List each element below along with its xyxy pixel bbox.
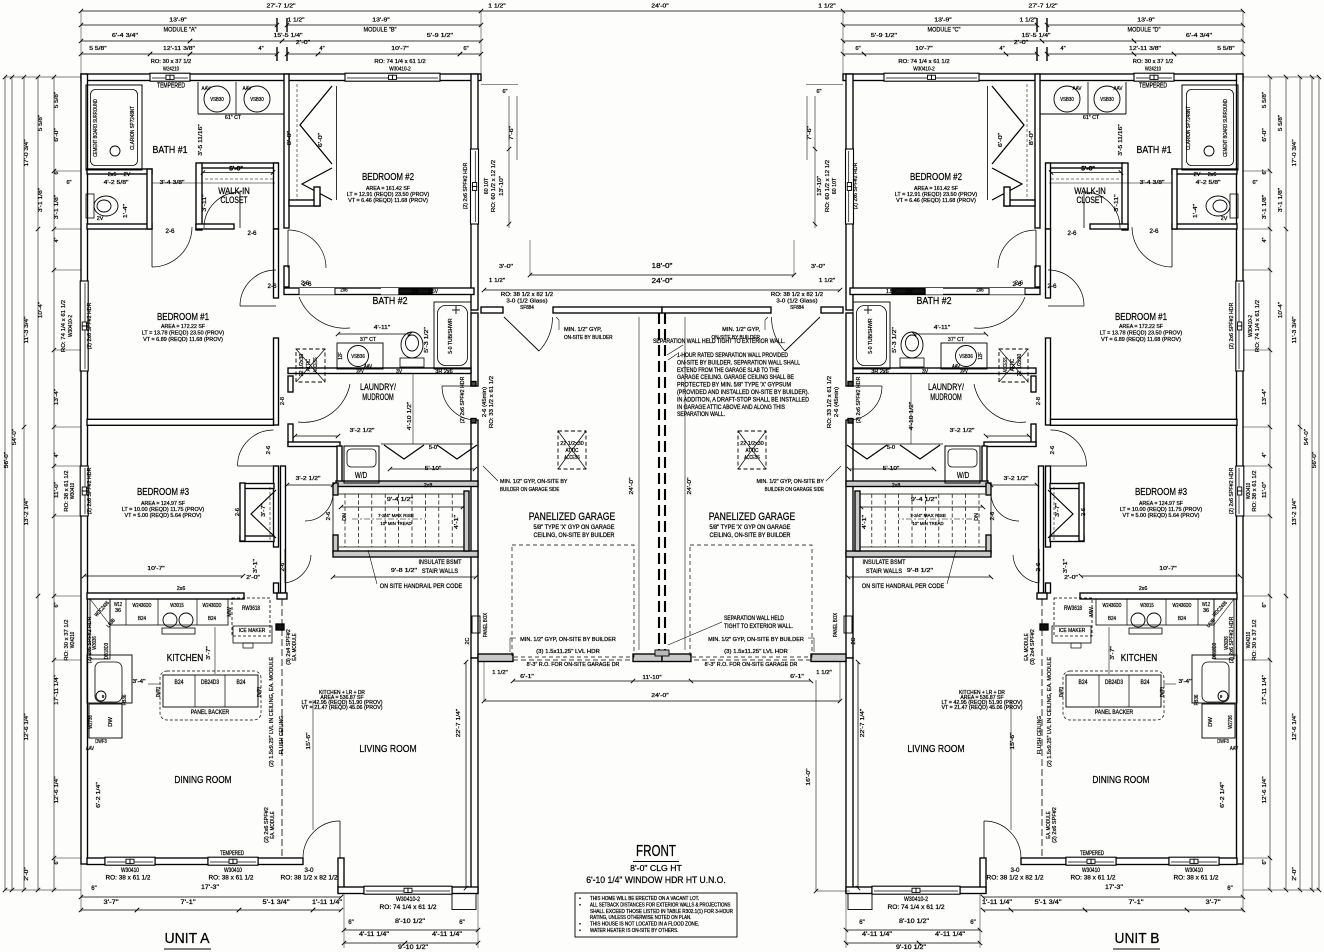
svg-text:2-8: 2-8 — [1036, 397, 1042, 405]
svg-text:1.5V: 1.5V — [428, 289, 439, 295]
svg-text:4'-11 1/4": 4'-11 1/4" — [359, 932, 389, 938]
svg-text:9: 9 — [102, 694, 105, 699]
svg-text:CEILING, ON-SITE BY BUILDER: CEILING, ON-SITE BY BUILDER — [534, 533, 616, 539]
svg-text:5-0: 5-0 — [429, 445, 437, 451]
svg-text:VT = 6.89 (REQD) 11.68 (PROV): VT = 6.89 (REQD) 11.68 (PROV) — [1101, 337, 1181, 343]
svg-text:6'-10 1/4" WINDOW HDR HT U.N.O: 6'-10 1/4" WINDOW HDR HT U.N.O. — [586, 875, 726, 885]
svg-text:13'-4": 13'-4" — [54, 389, 60, 405]
svg-text:SF884: SF884 — [790, 305, 804, 311]
svg-text:3'-2 1/2": 3'-2 1/2" — [296, 476, 321, 482]
svg-text:BATH #2: BATH #2 — [373, 296, 408, 307]
svg-text:RO: 74 1/4 x 61 1/2: RO: 74 1/4 x 61 1/2 — [374, 59, 425, 65]
svg-text:VT = 6.46 (REQD) 11.68 (PROV): VT = 6.46 (REQD) 11.68 (PROV) — [896, 198, 976, 204]
svg-text:24'-0": 24'-0" — [651, 693, 668, 699]
svg-text:DW: DW — [108, 717, 114, 727]
svg-text:(2) 1.5x9.25" LVL IN CEILING,: (2) 1.5x9.25" LVL IN CEILING, EA. MODULE — [269, 657, 275, 767]
svg-text:TIGHT TO EXTERIOR WALL.: TIGHT TO EXTERIOR WALL. — [724, 624, 793, 630]
svg-text:MUDROOM: MUDROOM — [362, 392, 394, 402]
svg-text:5 5/8": 5 5/8" — [89, 46, 106, 52]
svg-text:3-0 (1/2 Glass): 3-0 (1/2 Glass) — [776, 299, 817, 305]
svg-text:2-6 (45min): 2-6 (45min) — [482, 387, 488, 417]
svg-text:VT = 21.47 (REQD) 45.06 (PROV): VT = 21.47 (REQD) 45.06 (PROV) — [302, 705, 383, 711]
svg-text:4": 4" — [999, 46, 1004, 52]
svg-text:AAV: AAV — [952, 364, 960, 370]
svg-text:12'-11 3/8": 12'-11 3/8" — [1129, 46, 1161, 52]
svg-text:2V: 2V — [124, 172, 131, 178]
svg-text:W2736: W2736 — [1228, 715, 1234, 729]
svg-text:10'-7": 10'-7" — [391, 46, 408, 52]
svg-text:TEMPERED: TEMPERED — [220, 851, 244, 857]
svg-text:6'-0": 6'-0" — [318, 133, 324, 147]
svg-text:1.5V: 1.5V — [886, 289, 897, 295]
svg-text:RO: 74 1/4 x 61 1/2: RO: 74 1/4 x 61 1/2 — [61, 300, 67, 352]
svg-text:1 1/2": 1 1/2" — [1020, 18, 1037, 24]
svg-text:RO: 38 1/2 x 82 1/2: RO: 38 1/2 x 82 1/2 — [987, 876, 1045, 882]
svg-text:ON-SITE BY BUILDER: ON-SITE BY BUILDER — [564, 335, 613, 341]
svg-text:W24210: W24210 — [70, 632, 76, 649]
svg-text:4'-2 5/8": 4'-2 5/8" — [104, 180, 129, 186]
svg-text:24'-0": 24'-0" — [687, 477, 693, 494]
svg-text:5 5/8": 5 5/8" — [1217, 46, 1234, 52]
svg-text:13'-2 1/4": 13'-2 1/4" — [24, 498, 30, 525]
svg-text:CLARION SP7248NT: CLARION SP7248NT — [130, 105, 136, 150]
svg-text:KITCHEN: KITCHEN — [167, 653, 203, 664]
svg-text:RO: 60 1/2 x 12 1/2: RO: 60 1/2 x 12 1/2 — [825, 160, 831, 212]
svg-text:3'-7": 3'-7" — [1110, 646, 1116, 660]
svg-text:11'-0": 11'-0" — [1262, 482, 1268, 498]
svg-text:RO: 38 x 61 1/2: RO: 38 x 61 1/2 — [106, 876, 152, 882]
svg-text:12'-11 3/8": 12'-11 3/8" — [163, 46, 195, 52]
svg-text:PANEL BOX: PANEL BOX — [483, 613, 489, 638]
svg-text:1 1/2": 1 1/2" — [488, 4, 505, 10]
svg-text:AREA = 172.22 SF: AREA = 172.22 SF — [161, 324, 206, 330]
svg-text:7-3/4" MAX RISE: 7-3/4" MAX RISE — [910, 513, 946, 519]
svg-text:4'-11": 4'-11" — [934, 325, 951, 331]
svg-text:W2436DD: W2436DD — [1103, 603, 1122, 609]
svg-text:B24: B24 — [138, 616, 146, 622]
svg-text:4": 4" — [54, 452, 60, 457]
svg-text:EA. MODULE: EA. MODULE — [1046, 811, 1052, 839]
svg-text:15'-6": 15'-6" — [306, 732, 312, 749]
svg-text:27'-7 1/2": 27'-7 1/2" — [267, 4, 296, 10]
svg-text:9'-4 1/2": 9'-4 1/2" — [387, 497, 413, 503]
svg-text:4'-11": 4'-11" — [374, 325, 391, 331]
svg-text:MIN. 1/2" GYP,: MIN. 1/2" GYP, — [564, 327, 602, 333]
svg-text:MODULE "C": MODULE "C" — [928, 27, 962, 34]
svg-text:3'-7": 3'-7" — [1206, 900, 1221, 906]
svg-text:6": 6" — [1262, 859, 1268, 864]
svg-text:W2436DD: W2436DD — [1173, 603, 1192, 609]
svg-text:4'-10 1/2": 4'-10 1/2" — [407, 402, 413, 431]
svg-text:12F: 12F — [338, 352, 344, 360]
svg-text:5/8" TYPE 'X' GYP ON GARAGE: 5/8" TYPE 'X' GYP ON GARAGE — [710, 525, 791, 531]
svg-text:6'-1": 6'-1" — [790, 674, 804, 680]
svg-text:11'-3 3/4": 11'-3 3/4" — [24, 316, 30, 343]
svg-text:2x8: 2x8 — [424, 483, 433, 489]
svg-text:17'-11 1/4": 17'-11 1/4" — [54, 675, 60, 705]
svg-text:13'-2 1/4": 13'-2 1/4" — [1292, 498, 1298, 525]
svg-text:BATH #1: BATH #1 — [1137, 145, 1172, 156]
svg-text:5'-1 3/4": 5'-1 3/4" — [1035, 900, 1062, 906]
svg-text:6": 6" — [54, 169, 60, 174]
svg-text:12'-6 1/4": 12'-6 1/4" — [1292, 713, 1298, 740]
svg-text:3'-11": 3'-11" — [202, 194, 208, 211]
svg-text:3'-7": 3'-7" — [104, 900, 119, 906]
svg-text:2V: 2V — [97, 216, 104, 222]
svg-text:11'-3 3/4": 11'-3 3/4" — [1292, 316, 1298, 343]
svg-text:W30410-2: W30410-2 — [396, 897, 421, 903]
svg-text:RO: 38 x 61 1/2: RO: 38 x 61 1/2 — [1252, 470, 1258, 511]
svg-text:B24: B24 — [237, 680, 247, 686]
svg-text:1 1/2": 1 1/2" — [489, 278, 505, 284]
svg-text:24'-0": 24'-0" — [652, 278, 674, 285]
svg-text:6'-0": 6'-0" — [54, 128, 60, 142]
svg-text:2-6: 2-6 — [1081, 508, 1087, 516]
svg-text:6'-4 3/4": 6'-4 3/4" — [1186, 33, 1212, 39]
svg-text:RO: 74 1/4 x 61 1/2: RO: 74 1/4 x 61 1/2 — [888, 905, 946, 911]
svg-text:2-6: 2-6 — [280, 563, 286, 572]
svg-text:UNIT B: UNIT B — [1115, 930, 1160, 947]
svg-text:1'-11 1/4": 1'-11 1/4" — [312, 900, 342, 906]
svg-text:DINING ROOM: DINING ROOM — [1092, 775, 1149, 786]
svg-text:LAUNDRY/: LAUNDRY/ — [928, 382, 964, 392]
svg-text:RATING, UNLESS OTHERWISE NOTED: RATING, UNLESS OTHERWISE NOTED ON PLAN. — [590, 915, 691, 921]
svg-text:BUILDER ON GARAGE SIDE: BUILDER ON GARAGE SIDE — [765, 487, 825, 493]
svg-text:2-6: 2-6 — [990, 512, 996, 521]
svg-text:W30410: W30410 — [70, 483, 76, 500]
svg-text:2x6: 2x6 — [1139, 586, 1148, 592]
svg-text:ACCESS: ACCESS — [744, 455, 760, 461]
svg-text:EXTEND FROM THE GARAGE SLAB TO: EXTEND FROM THE GARAGE SLAB TO THE — [677, 368, 779, 374]
svg-text:6": 6" — [1262, 602, 1268, 607]
svg-text:4'-10 1/2": 4'-10 1/2" — [909, 402, 915, 431]
svg-text:2'-0": 2'-0" — [246, 575, 260, 581]
svg-text:5 5/8": 5 5/8" — [38, 115, 44, 131]
svg-text:(2) 2x6 SPF#2 HDR: (2) 2x6 SPF#2 HDR — [87, 617, 93, 664]
svg-text:PANEL BACKER: PANEL BACKER — [1095, 709, 1134, 716]
svg-text:13'-9": 13'-9" — [1137, 18, 1154, 24]
svg-text:5'-9 1/2": 5'-9 1/2" — [871, 33, 897, 39]
svg-text:3'-7": 3'-7" — [206, 646, 212, 660]
svg-text:4": 4" — [319, 46, 324, 52]
svg-text:4'-1": 4'-1" — [454, 515, 460, 529]
svg-text:1'-11 1/4": 1'-11 1/4" — [982, 900, 1012, 906]
svg-text:1'-4": 1'-4" — [123, 204, 129, 218]
svg-text:22 1/2x30: 22 1/2x30 — [1017, 354, 1023, 377]
svg-text:18'-0": 18'-0" — [652, 263, 674, 270]
svg-text:RO: 38 x 61 1/2: RO: 38 x 61 1/2 — [1071, 876, 1117, 882]
svg-text:TEMPERED: TEMPERED — [1080, 851, 1104, 857]
svg-text:6'-2 1/4": 6'-2 1/4" — [1220, 782, 1226, 808]
svg-text:SEPARATION WALL HELD: SEPARATION WALL HELD — [724, 616, 785, 622]
svg-text:5'-9 1/2": 5'-9 1/2" — [427, 33, 453, 39]
svg-text:22'-7 1/4": 22'-7 1/4" — [456, 709, 462, 738]
svg-text:DWF3: DWF3 — [95, 739, 107, 745]
svg-text:3'-1 1/8": 3'-1 1/8" — [38, 188, 44, 212]
svg-text:2x8: 2x8 — [892, 483, 901, 489]
svg-text:1-HOUR RATED SEPARATION WALL P: 1-HOUR RATED SEPARATION WALL PROVIDED — [677, 353, 789, 359]
svg-text:1 1/2": 1 1/2" — [819, 278, 835, 284]
svg-text:37" CT: 37" CT — [360, 337, 377, 343]
svg-text:2-6: 2-6 — [301, 281, 309, 287]
svg-text:15'-5 1/4": 15'-5 1/4" — [274, 33, 303, 39]
svg-text:B24: B24 — [175, 680, 185, 686]
svg-text:W30410: W30410 — [224, 868, 243, 874]
svg-text:4'-11 1/4": 4'-11 1/4" — [432, 932, 462, 938]
svg-text:FLUSH CEILING: FLUSH CEILING — [279, 715, 285, 754]
svg-text:DB24D3: DB24D3 — [1105, 680, 1124, 686]
svg-text:12'-6 1/4": 12'-6 1/4" — [1262, 776, 1268, 803]
svg-text:6": 6" — [54, 859, 60, 864]
svg-text:3'-7": 3'-7" — [261, 503, 267, 517]
svg-text:ON SITE HANDRAIL PER CODE: ON SITE HANDRAIL PER CODE — [380, 583, 463, 590]
svg-text:2-6: 2-6 — [326, 512, 332, 521]
svg-text:VSB30: VSB30 — [250, 97, 264, 103]
svg-text:W30410: W30410 — [121, 868, 140, 874]
svg-text:MIN. 1/2" GYP,: MIN. 1/2" GYP, — [722, 327, 760, 333]
svg-text:AAV: AAV — [1230, 746, 1238, 752]
svg-text:13'-10": 13'-10" — [817, 176, 823, 196]
svg-text:9'-8 1/2": 9'-8 1/2" — [907, 568, 933, 574]
svg-text:W24210: W24210 — [1145, 67, 1161, 73]
svg-text:1'-4": 1'-4" — [1193, 204, 1199, 218]
svg-text:10" MIN TREAD: 10" MIN TREAD — [380, 521, 412, 527]
svg-text:INSULATE BSMT: INSULATE BSMT — [863, 559, 906, 566]
svg-text:W/D: W/D — [355, 471, 367, 480]
svg-text:VT = 21.47 (REQD) 45.06 (PROV): VT = 21.47 (REQD) 45.06 (PROV) — [942, 705, 1023, 711]
svg-text:4'-11 1/4": 4'-11 1/4" — [862, 932, 892, 938]
svg-text:EA. MODULE: EA. MODULE — [270, 811, 276, 839]
svg-text:AAV: AAV — [1114, 86, 1123, 92]
svg-text:RO: 38 1/2 x 82 1/2: RO: 38 1/2 x 82 1/2 — [771, 292, 823, 298]
svg-text:RW3618: RW3618 — [1064, 606, 1083, 612]
svg-text:11'-0": 11'-0" — [54, 482, 60, 498]
svg-text:DWP3: DWP3 — [1059, 687, 1065, 697]
svg-text:CEILING, ON-SITE BY BUILDER: CEILING, ON-SITE BY BUILDER — [710, 533, 792, 539]
svg-text:17'-11 1/4": 17'-11 1/4" — [1262, 675, 1268, 705]
svg-text:2-6: 2-6 — [248, 231, 258, 237]
svg-text:MUDROOM: MUDROOM — [930, 392, 962, 402]
svg-text:12F: 12F — [978, 352, 984, 360]
svg-text:12'-6 1/4": 12'-6 1/4" — [54, 776, 60, 803]
svg-text:LIVING ROOM: LIVING ROOM — [907, 744, 964, 755]
svg-text:BEDROOM #2: BEDROOM #2 — [910, 172, 962, 183]
svg-text:2'-0": 2'-0" — [1014, 40, 1029, 46]
svg-text:10'-7": 10'-7" — [1159, 566, 1176, 572]
svg-text:BUILDER ON GARAGE SIDE: BUILDER ON GARAGE SIDE — [500, 487, 560, 493]
svg-text:5 5/8": 5 5/8" — [1262, 92, 1268, 108]
svg-text:7'-6": 7'-6" — [509, 126, 515, 140]
svg-text:FLUSH CEILING: FLUSH CEILING — [1037, 715, 1043, 754]
svg-text:TEMPERED: TEMPERED — [1139, 83, 1167, 90]
svg-text:MIN. 1/2" GYP, ON-SITE BY: MIN. 1/2" GYP, ON-SITE BY — [757, 479, 825, 485]
svg-text:24'-0": 24'-0" — [629, 477, 635, 494]
svg-text:W30410: W30410 — [1185, 868, 1204, 874]
svg-text:VSB30: VSB30 — [210, 97, 224, 103]
svg-text:36: 36 — [1203, 608, 1209, 614]
svg-text:3'-1": 3'-1" — [253, 559, 259, 573]
svg-text:9'-10 1/2": 9'-10 1/2" — [398, 945, 428, 951]
svg-text:22 1/2x30: 22 1/2x30 — [560, 441, 584, 447]
svg-text:VSB36: VSB36 — [351, 354, 365, 360]
svg-text:13'-10": 13'-10" — [499, 176, 505, 196]
svg-text:SHALL EXCEED THOSE LISTED IN T: SHALL EXCEED THOSE LISTED IN TABLE R302.… — [590, 909, 733, 915]
svg-text:2-6: 2-6 — [1050, 446, 1056, 455]
svg-text:1 1/2": 1 1/2" — [288, 18, 305, 24]
svg-text:PANELIZED GARAGE: PANELIZED GARAGE — [709, 511, 795, 523]
svg-text:3'-0": 3'-0" — [499, 264, 513, 270]
svg-text:4": 4" — [258, 46, 263, 52]
svg-text:RO: 33 1/2 x 61 1/2: RO: 33 1/2 x 61 1/2 — [489, 376, 495, 428]
svg-text:2V: 2V — [1194, 172, 1201, 178]
svg-text:22 1/2x30: 22 1/2x30 — [740, 441, 764, 447]
svg-text:3R 2x6: 3R 2x6 — [435, 369, 453, 375]
svg-text:W30410-2: W30410-2 — [1248, 315, 1254, 337]
svg-text:10'-4": 10'-4" — [38, 302, 44, 318]
svg-text:STAIR WALLS: STAIR WALLS — [866, 568, 903, 575]
svg-text:BEDROOM #3: BEDROOM #3 — [1135, 487, 1187, 498]
svg-text:EA. MODULE: EA. MODULE — [292, 633, 298, 661]
svg-text:PANELIZED GARAGE: PANELIZED GARAGE — [529, 511, 615, 523]
svg-text:DW: DW — [1208, 717, 1214, 727]
svg-text:60 10T: 60 10T — [484, 177, 490, 194]
svg-text:FB36: FB36 — [1194, 695, 1200, 706]
svg-text:2-6: 2-6 — [1068, 231, 1078, 237]
svg-text:LIVING ROOM: LIVING ROOM — [359, 744, 416, 755]
svg-text:54'-0": 54'-0" — [12, 429, 18, 445]
svg-text:SEPARATION WALL HELD TIGHT TO: SEPARATION WALL HELD TIGHT TO EXTERIOR W… — [653, 339, 785, 345]
svg-text:W30410-2: W30410-2 — [904, 897, 929, 903]
svg-text:10'-4": 10'-4" — [1278, 302, 1284, 318]
svg-text:RO: 30 x 37 1/2: RO: 30 x 37 1/2 — [1133, 59, 1174, 65]
svg-text:•: • — [579, 902, 581, 908]
svg-text:(3) 2x4 SPF#2: (3) 2x4 SPF#2 — [1030, 629, 1036, 665]
svg-text:RO: 38 x 61 1/2: RO: 38 x 61 1/2 — [1174, 876, 1220, 882]
svg-text:4'-11 1/4": 4'-11 1/4" — [935, 932, 965, 938]
svg-text:11'-10": 11'-10" — [642, 675, 661, 681]
svg-text:MIN. 1/2" GYP, ON-SITE BY BUIL: MIN. 1/2" GYP, ON-SITE BY BUILDER — [708, 637, 804, 643]
svg-text:5'-3 1/2": 5'-3 1/2" — [892, 327, 898, 353]
svg-text:2W: 2W — [905, 289, 913, 295]
svg-text:8'-0": 8'-0" — [287, 131, 293, 145]
svg-text:3V: 3V — [922, 369, 929, 375]
svg-text:(2) 2x6 SPF#2: (2) 2x6 SPF#2 — [1052, 807, 1058, 843]
svg-text:2-6: 2-6 — [1015, 281, 1023, 287]
svg-text:W/D: W/D — [957, 471, 969, 480]
svg-text:(2) 2x6 SPF#2 HDR: (2) 2x6 SPF#2 HDR — [1229, 468, 1235, 515]
svg-text:3R 2x6: 3R 2x6 — [871, 369, 889, 375]
svg-text:9'-8 1/2": 9'-8 1/2" — [391, 568, 417, 574]
svg-text:2'-0": 2'-0" — [1064, 575, 1078, 581]
svg-text:2x6: 2x6 — [108, 172, 117, 178]
svg-text:13'-9": 13'-9" — [372, 18, 389, 24]
svg-text:6'-2 1/4": 6'-2 1/4" — [96, 782, 102, 808]
svg-text:RW3618: RW3618 — [242, 606, 261, 612]
svg-text:6": 6" — [91, 886, 96, 892]
svg-text:6": 6" — [54, 602, 60, 607]
svg-text:RO: 38 1/2 x 82 1/2: RO: 38 1/2 x 82 1/2 — [281, 876, 339, 882]
svg-text:4": 4" — [54, 237, 60, 242]
svg-text:(PROVIDED AND INSTALLED ON-SIT: (PROVIDED AND INSTALLED ON-SITE BY BUILD… — [677, 390, 809, 396]
svg-text:AAV: AAV — [364, 364, 372, 370]
svg-text:UNIT A: UNIT A — [165, 930, 210, 947]
svg-text:CEMENT BOARD SURROUND: CEMENT BOARD SURROUND — [1223, 99, 1229, 157]
svg-text:2-6: 2-6 — [266, 446, 272, 455]
svg-text:6'-0": 6'-0" — [998, 133, 1004, 147]
svg-text:PANEL BOX: PANEL BOX — [833, 613, 839, 638]
svg-text:4'-2 5/8": 4'-2 5/8" — [1196, 180, 1221, 186]
svg-text:DB18D3: DB18D3 — [104, 643, 110, 659]
svg-text:2-6: 2-6 — [268, 284, 278, 290]
svg-text:8'-3" R.O. FOR ON-SITE GARAGE: 8'-3" R.O. FOR ON-SITE GARAGE DR — [527, 662, 620, 668]
svg-text:STAIR WALLS: STAIR WALLS — [422, 568, 459, 575]
svg-text:2-8: 2-8 — [280, 397, 286, 405]
svg-text:•: • — [579, 928, 581, 934]
svg-text:ATTIC: ATTIC — [746, 448, 759, 454]
svg-text:W30410: W30410 — [1246, 483, 1252, 500]
svg-text:4": 4" — [1262, 237, 1268, 242]
svg-text:PANEL BACKER: PANEL BACKER — [191, 709, 230, 716]
svg-text:22 1/2x30: 22 1/2x30 — [299, 354, 305, 377]
svg-text:AAV: AAV — [202, 86, 211, 92]
svg-text:1 1/2": 1 1/2" — [492, 670, 508, 676]
svg-text:(2) 2x6 SPF#2 HDR: (2) 2x6 SPF#2 HDR — [1229, 617, 1235, 664]
svg-text:4": 4" — [1262, 452, 1268, 457]
svg-text:2C: 2C — [851, 637, 857, 644]
svg-text:RO: 38 x 61 1/2: RO: 38 x 61 1/2 — [209, 876, 255, 882]
svg-text:RO: 74 1/4 x 61 1/2: RO: 74 1/4 x 61 1/2 — [1255, 300, 1261, 352]
svg-text:W30410-2: W30410-2 — [68, 315, 74, 337]
svg-text:THIS HOME WILL BE ERECTED ON A: THIS HOME WILL BE ERECTED ON A VACANT LO… — [590, 896, 699, 902]
svg-text:3'-5 11/16": 3'-5 11/16" — [198, 124, 204, 155]
svg-text:6": 6" — [970, 920, 975, 926]
svg-text:37" CT: 37" CT — [948, 337, 965, 343]
svg-text:17'-0 3/4": 17'-0 3/4" — [24, 139, 30, 166]
svg-text:5'-0": 5'-0" — [1081, 167, 1095, 173]
svg-text:4'-1": 4'-1" — [862, 515, 868, 529]
svg-text:5/8" TYPE 'X' GYP ON GARAGE: 5/8" TYPE 'X' GYP ON GARAGE — [534, 525, 615, 531]
svg-text:BEDROOM #1: BEDROOM #1 — [157, 312, 209, 323]
svg-text:RO: 74 1/4 x 61 1/2: RO: 74 1/4 x 61 1/2 — [380, 905, 438, 911]
svg-text:ACCESS: ACCESS — [1003, 357, 1009, 372]
svg-text:VT = 5.00 (REQD) 5.64 (PROV): VT = 5.00 (REQD) 5.64 (PROV) — [1123, 513, 1200, 519]
svg-text:3'-1": 3'-1" — [1063, 559, 1069, 573]
svg-text:DB18D3: DB18D3 — [1212, 643, 1218, 659]
svg-text:B24: B24 — [1178, 616, 1186, 622]
svg-text:2'-0": 2'-0" — [1292, 867, 1298, 881]
svg-text:B24: B24 — [1108, 616, 1116, 622]
svg-text:ACCESS: ACCESS — [564, 455, 580, 461]
svg-text:FRONT: FRONT — [636, 843, 676, 860]
svg-text:DINING ROOM: DINING ROOM — [174, 775, 231, 786]
svg-text:6'-0": 6'-0" — [1262, 128, 1268, 142]
svg-text:(2) 2x6 SPF#2 HDR: (2) 2x6 SPF#2 HDR — [463, 163, 469, 210]
svg-text:CLARION SP7248NT: CLARION SP7248NT — [1186, 105, 1192, 150]
svg-text:AAV: AAV — [86, 746, 94, 752]
svg-text:MIN. 1/2" GYP, ON-SITE BY: MIN. 1/2" GYP, ON-SITE BY — [500, 479, 568, 485]
svg-text:54'-0": 54'-0" — [1304, 429, 1310, 445]
svg-text:6": 6" — [1227, 886, 1232, 892]
svg-text:6": 6" — [463, 46, 468, 52]
svg-text:RO: 38 1/2 x 82 1/2: RO: 38 1/2 x 82 1/2 — [501, 292, 553, 298]
svg-text:2V: 2V — [1221, 216, 1228, 222]
svg-text:15'-5 1/4": 15'-5 1/4" — [1022, 33, 1051, 39]
svg-text:THIS HOUSE IS NOT LOCATED IN A: THIS HOUSE IS NOT LOCATED IN A FLOOD ZON… — [590, 922, 699, 928]
svg-text:B24: B24 — [1141, 680, 1151, 686]
svg-text:VSB30: VSB30 — [1100, 97, 1114, 103]
svg-text:(2) 2x6 SPF#2 HDR: (2) 2x6 SPF#2 HDR — [856, 377, 862, 424]
svg-text:2x6: 2x6 — [976, 288, 984, 294]
